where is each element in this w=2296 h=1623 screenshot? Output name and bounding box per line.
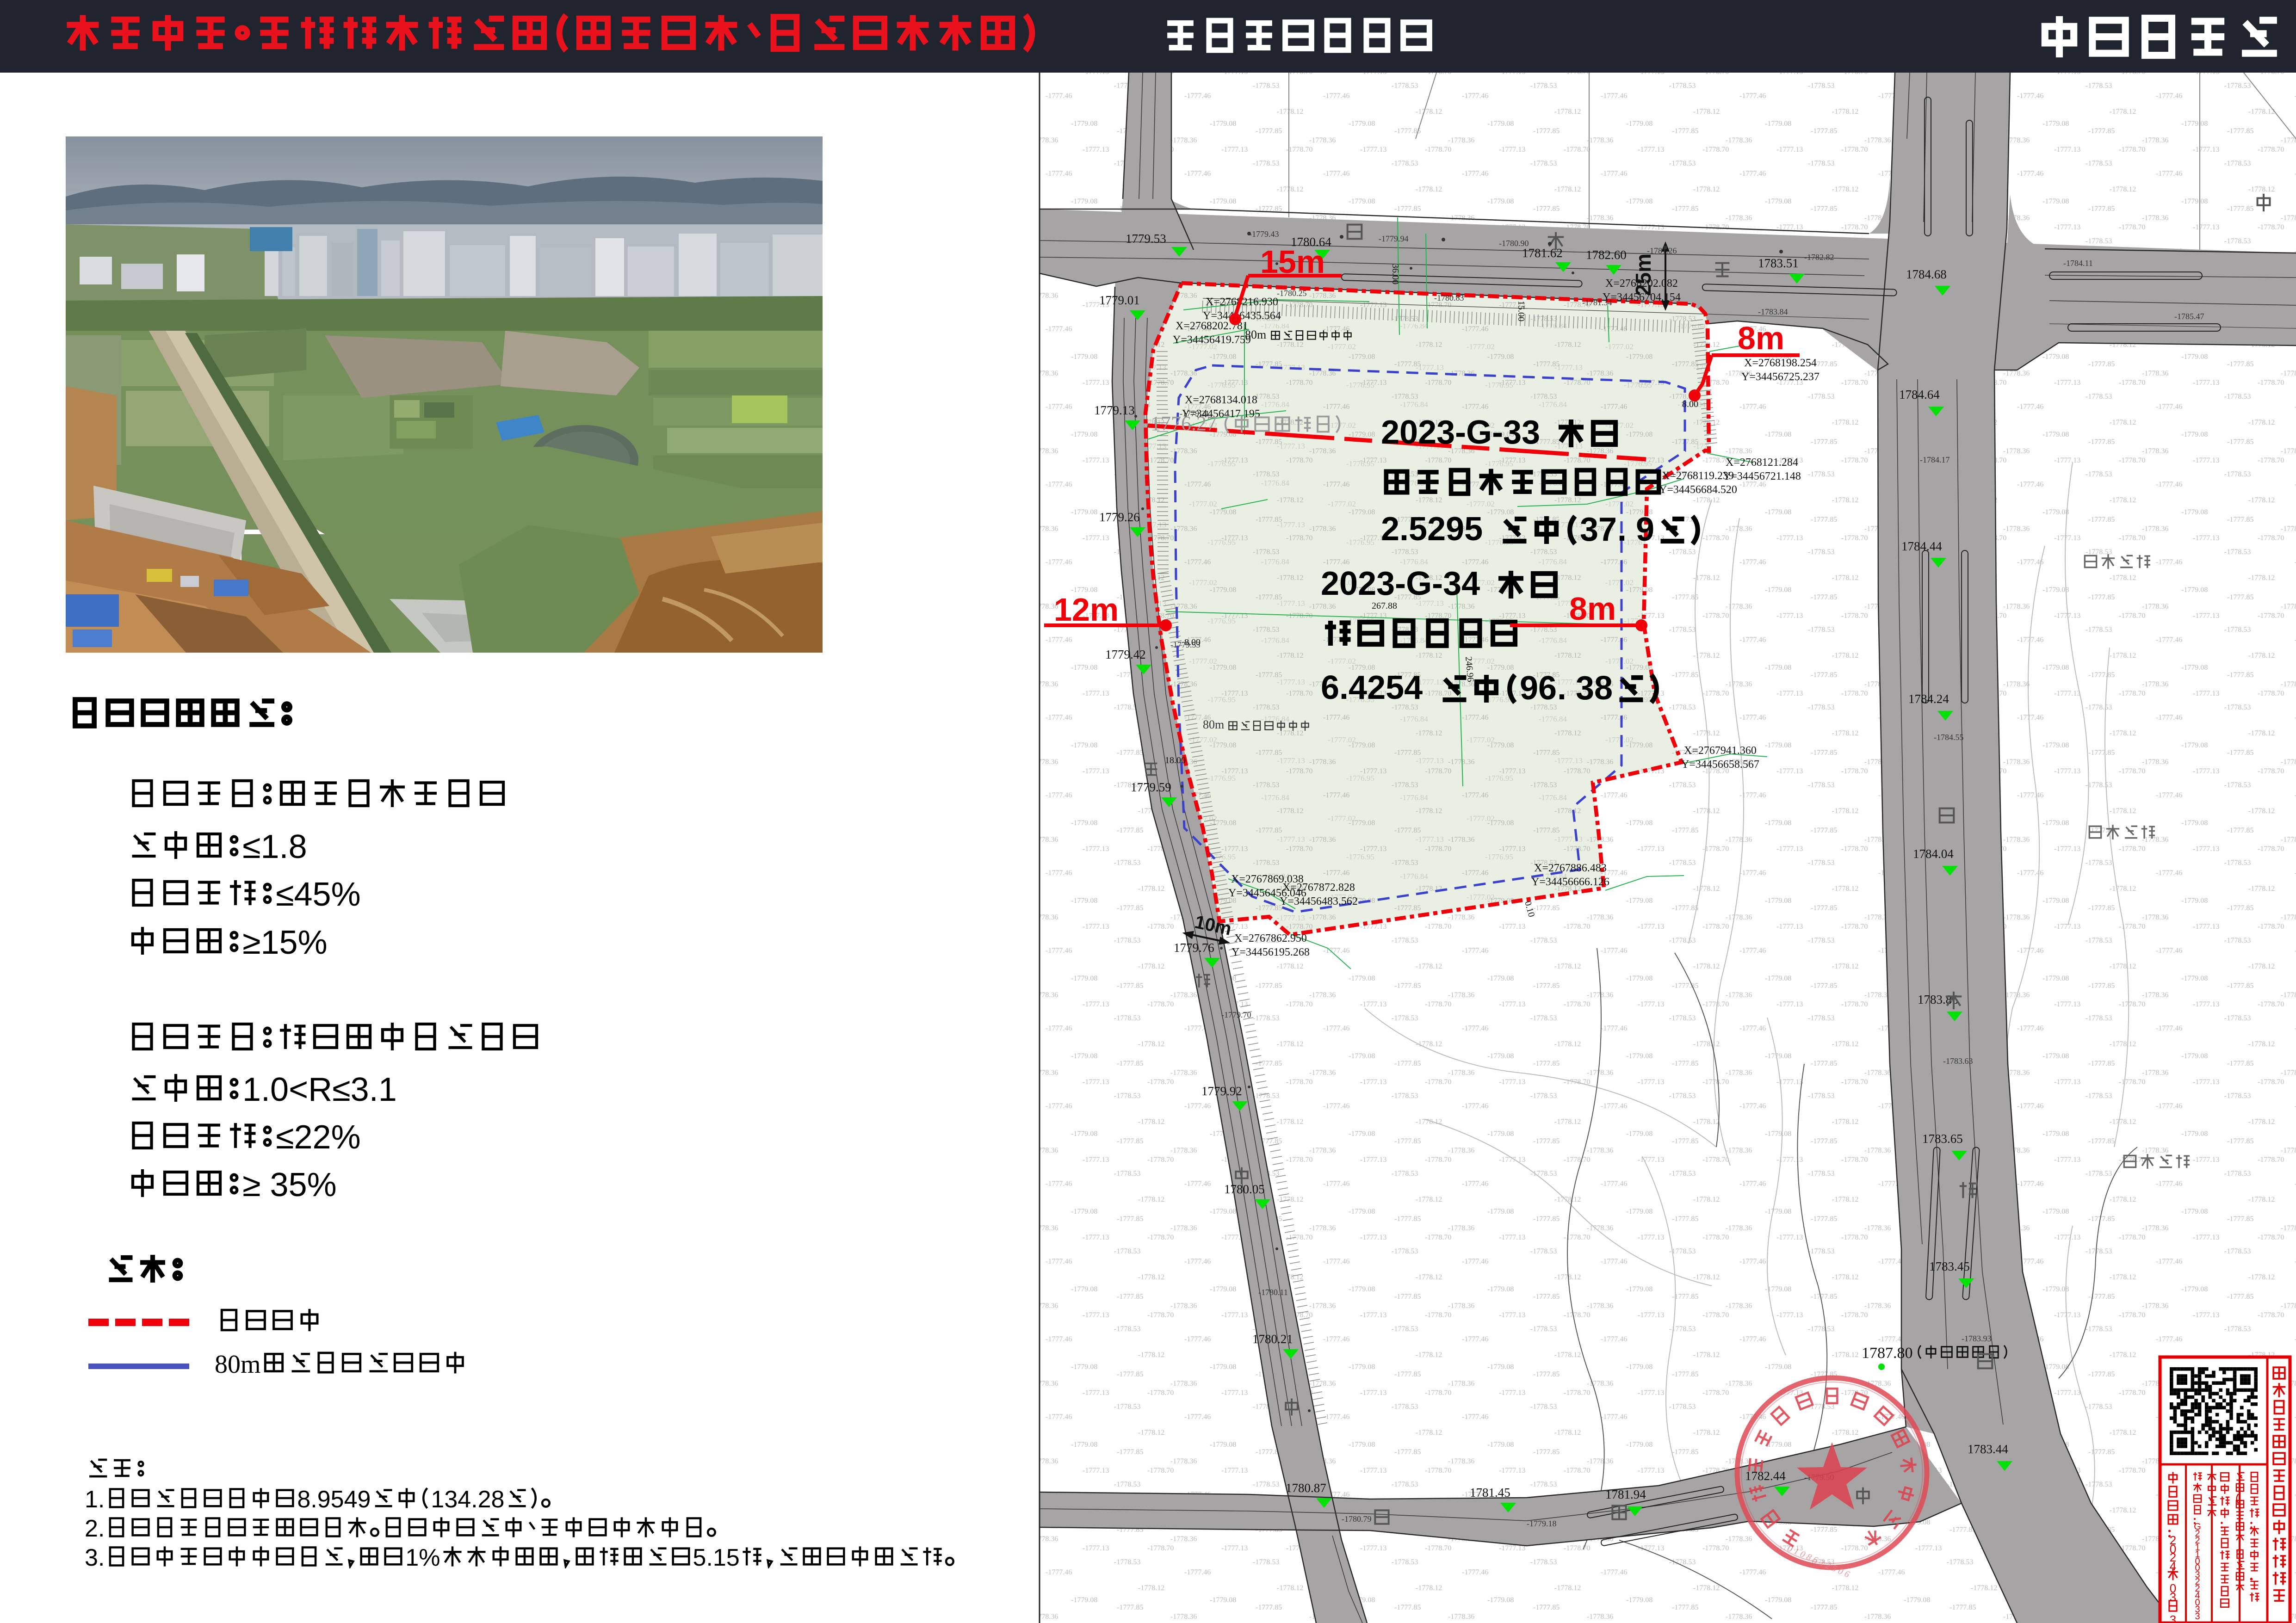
svg-text:1783.51: 1783.51 [1758, 256, 1799, 270]
svg-text:-1780.90: -1780.90 [1499, 239, 1529, 248]
svg-text:X=2767886.483: X=2767886.483 [1534, 862, 1607, 874]
svg-text:X=2767862.950: X=2767862.950 [1234, 932, 1307, 944]
svg-text:1779.92: 1779.92 [1201, 1084, 1242, 1098]
svg-text:2023-G-33: 2023-G-33 [1381, 414, 1540, 451]
svg-text:0: 0 [2170, 1621, 2176, 1623]
svg-text:36.00: 36.00 [1390, 264, 1400, 284]
svg-text:X=2767872.828: X=2767872.828 [1282, 882, 1355, 894]
svg-text:2023-G-34: 2023-G-34 [1321, 565, 1480, 602]
svg-text:18.00: 18.00 [1165, 755, 1186, 765]
svg-text:-1784.11: -1784.11 [2063, 259, 2093, 268]
svg-text:7: 7 [1598, 511, 1617, 548]
svg-text:Y=34456684.520: Y=34456684.520 [1659, 484, 1737, 496]
svg-text:-1780.79: -1780.79 [1342, 1514, 1372, 1524]
svg-text:12m: 12m [1054, 592, 1119, 628]
svg-text:1780.05: 1780.05 [1224, 1182, 1265, 1196]
svg-text:-1779.43: -1779.43 [1249, 229, 1279, 239]
svg-text:-1783.84: -1783.84 [1758, 307, 1788, 316]
svg-text:X=2768134.018: X=2768134.018 [1185, 394, 1257, 406]
svg-text:2.5295: 2.5295 [1381, 511, 1483, 548]
svg-text:1783.65: 1783.65 [1922, 1132, 1963, 1146]
svg-text:1782.44: 1782.44 [1745, 1469, 1786, 1483]
svg-text:3: 3 [2170, 1590, 2176, 1604]
svg-text:1781.94: 1781.94 [1605, 1487, 1646, 1501]
svg-text:X=2767941.360: X=2767941.360 [1684, 745, 1757, 757]
svg-text:1779.01: 1779.01 [1099, 293, 1140, 307]
svg-text:1779.76: 1779.76 [1174, 941, 1214, 955]
svg-text:-1784.17: -1784.17 [1920, 455, 1950, 464]
svg-text:-1780.83: -1780.83 [1434, 293, 1464, 302]
svg-text:-1783.63: -1783.63 [1943, 1056, 1973, 1066]
svg-text:15.00: 15.00 [1516, 301, 1526, 321]
svg-text:-1779.18: -1779.18 [1527, 1519, 1557, 1528]
svg-text:-1779.70: -1779.70 [1221, 1010, 1251, 1019]
svg-text:8: 8 [1594, 670, 1613, 707]
svg-text:1780.87: 1780.87 [1286, 1481, 1326, 1495]
svg-text:25m: 25m [1631, 253, 1655, 296]
svg-text:9: 9 [1636, 511, 1654, 548]
svg-text:Y=34456721.148: Y=34456721.148 [1723, 470, 1801, 482]
svg-text:.: . [1617, 511, 1627, 548]
svg-text:1787.80: 1787.80 [1862, 1345, 1913, 1362]
svg-text:1784.24: 1784.24 [1908, 692, 1949, 706]
svg-text:Y=34456195.268: Y=34456195.268 [1232, 946, 1310, 958]
svg-text:6.4254: 6.4254 [1321, 669, 1423, 706]
svg-text:-1783.93: -1783.93 [1962, 1334, 1992, 1343]
svg-text:-1780.25: -1780.25 [1277, 289, 1307, 298]
svg-text:8.00: 8.00 [1682, 399, 1698, 409]
svg-text:-1781.34: -1781.34 [1582, 298, 1612, 307]
svg-text:-1779.94: -1779.94 [1379, 234, 1409, 243]
svg-text:-1785.47: -1785.47 [2174, 312, 2204, 321]
svg-text:1782.60: 1782.60 [1586, 248, 1627, 262]
svg-text:3: 3 [1580, 511, 1598, 548]
svg-text:-1780.11: -1780.11 [1258, 1288, 1288, 1297]
svg-text:1783.45: 1783.45 [1929, 1259, 1970, 1273]
svg-text:X=2768119.239: X=2768119.239 [1662, 470, 1734, 482]
svg-text:Y=34456483.562: Y=34456483.562 [1280, 895, 1358, 907]
svg-text:-1779.53: -1779.53 [1170, 640, 1201, 649]
svg-text:80m: 80m [1203, 718, 1224, 731]
svg-text:-1784.55: -1784.55 [1934, 733, 1964, 742]
svg-text:-1781.26: -1781.26 [1647, 246, 1677, 255]
svg-text:1779.13: 1779.13 [1094, 403, 1135, 417]
svg-text:1779.26: 1779.26 [1099, 510, 1140, 524]
svg-text:Y=34456666.126: Y=34456666.126 [1531, 876, 1609, 888]
svg-text:X=2768121.284: X=2768121.284 [1726, 457, 1798, 469]
svg-text:3: 3 [1576, 670, 1594, 707]
svg-text:1783.44: 1783.44 [1968, 1442, 2008, 1456]
svg-text:.: . [1557, 670, 1566, 707]
svg-text:1784.64: 1784.64 [1899, 388, 1940, 401]
svg-text:8m: 8m [1569, 591, 1616, 627]
svg-text:1779.59: 1779.59 [1131, 780, 1171, 794]
svg-text:1784.44: 1784.44 [1901, 539, 1942, 553]
svg-text:80m: 80m [1245, 328, 1266, 341]
svg-text:X=2768198.254: X=2768198.254 [1744, 357, 1817, 369]
svg-text:1780.21: 1780.21 [1252, 1332, 1293, 1346]
svg-text:-1782.82: -1782.82 [1804, 253, 1834, 262]
svg-text:8m: 8m [1738, 320, 1784, 356]
svg-text:1779.42: 1779.42 [1105, 648, 1146, 661]
svg-text:1784.04: 1784.04 [1913, 847, 1954, 861]
svg-text:3: 3 [2195, 1611, 2200, 1622]
svg-text:1784.68: 1784.68 [1906, 267, 1947, 281]
svg-text:6: 6 [1538, 670, 1557, 707]
svg-text:-1779.21: -1779.21 [1180, 409, 1210, 418]
svg-text:267.88: 267.88 [1372, 601, 1397, 611]
svg-text:1779.53: 1779.53 [1126, 232, 1166, 246]
svg-text:Y=34456658.567: Y=34456658.567 [1681, 759, 1759, 771]
svg-text:Y=34456419.759: Y=34456419.759 [1173, 334, 1251, 346]
svg-text:9: 9 [1520, 670, 1538, 707]
svg-text:Y=34456725.237: Y=34456725.237 [1741, 371, 1819, 383]
svg-text:1781.45: 1781.45 [1470, 1486, 1510, 1500]
